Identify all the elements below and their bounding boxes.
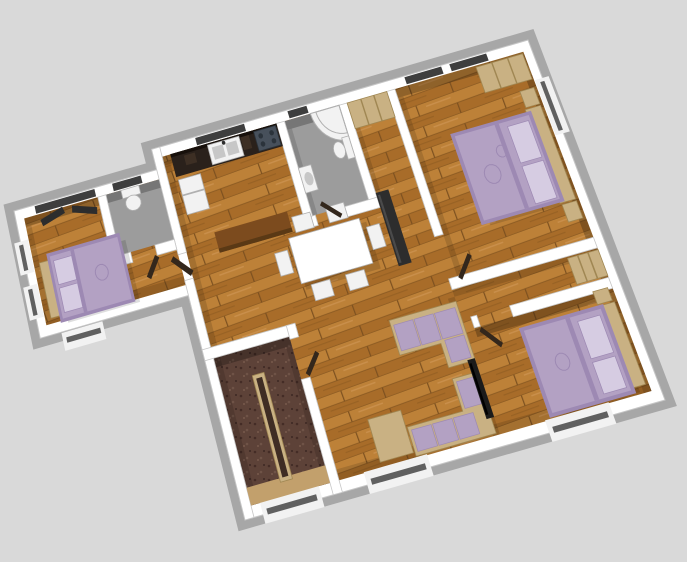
floor-plan-render (0, 0, 687, 562)
floor-plan-canvas (0, 0, 687, 562)
wc-toilet-bowl (126, 195, 141, 211)
